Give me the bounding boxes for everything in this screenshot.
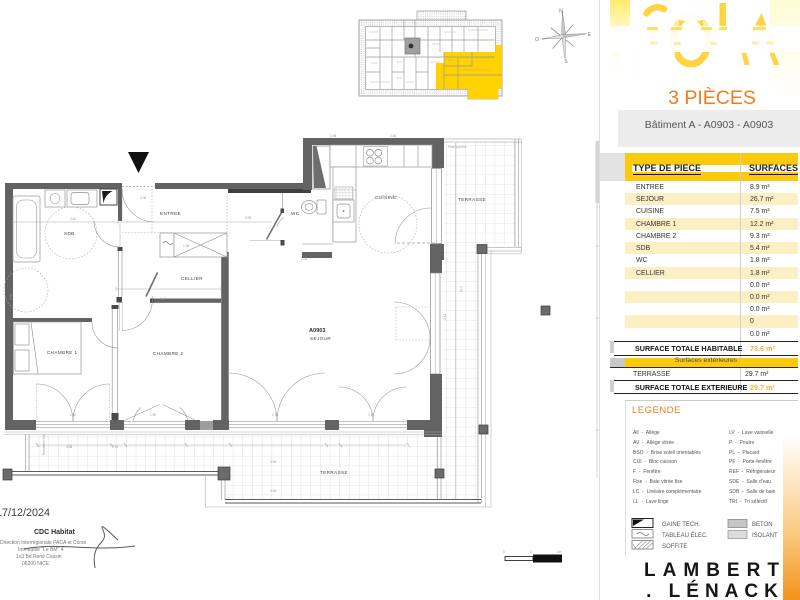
- svg-text:S: S: [564, 59, 568, 65]
- svg-text:Retombée 43a: Retombée 43a: [42, 434, 46, 455]
- svg-text:TERRASSE: TERRASSE: [320, 470, 348, 475]
- svg-text:2.80: 2.80: [70, 413, 76, 417]
- svg-text:CELLIER: CELLIER: [181, 276, 203, 281]
- svg-text:SEJOUR: SEJOUR: [310, 336, 331, 341]
- svg-text:2.61: 2.61: [443, 314, 447, 320]
- svg-text:2.96: 2.96: [272, 413, 278, 417]
- svg-text:0: 0: [503, 550, 505, 554]
- svg-text:CDC Habitat: CDC Habitat: [34, 529, 76, 536]
- svg-text:SOFFITE: SOFFITE: [662, 544, 687, 550]
- svg-text:WC: WC: [291, 211, 300, 216]
- svg-text:1.38: 1.38: [183, 244, 189, 248]
- svg-text:3.30: 3.30: [9, 294, 13, 300]
- svg-text:SDB: SDB: [64, 231, 75, 236]
- svg-text:1: 1: [530, 550, 532, 554]
- svg-text:06200 NICE: 06200 NICE: [22, 561, 50, 567]
- svg-text:3.99: 3.99: [245, 216, 251, 220]
- svg-text:Immeuble "Le BM" 4: Immeuble "Le BM" 4: [18, 547, 64, 553]
- svg-text:A0903: A0903: [309, 328, 325, 334]
- svg-text:2.82: 2.82: [70, 217, 76, 221]
- svg-text:1x3 Bd René Cassin: 1x3 Bd René Cassin: [16, 554, 62, 560]
- svg-text:TABLEAU ÉLEC.: TABLEAU ÉLEC.: [662, 532, 708, 539]
- svg-text:2m: 2m: [557, 550, 562, 554]
- svg-text:O: O: [535, 37, 539, 43]
- svg-text:1.98: 1.98: [330, 134, 336, 138]
- svg-text:E: E: [588, 32, 592, 38]
- svg-text:2.08: 2.08: [140, 196, 146, 200]
- svg-text:Direction Interrégionale PACA: Direction Interrégionale PACA et Corse: [0, 540, 87, 546]
- svg-text:ENTREE: ENTREE: [160, 211, 181, 216]
- svg-text:TERRASSE: TERRASSE: [458, 197, 486, 202]
- svg-text:4.56: 4.56: [270, 460, 276, 464]
- svg-text:CUISINE: CUISINE: [375, 195, 396, 200]
- svg-text:CHAMBRE 2: CHAMBRE 2: [153, 351, 183, 356]
- svg-text:4.56: 4.56: [270, 489, 276, 493]
- svg-text:ISOLANT: ISOLANT: [752, 533, 778, 539]
- svg-text:CHAMBRE 1: CHAMBRE 1: [47, 350, 77, 355]
- svg-text:1.90: 1.90: [150, 413, 156, 417]
- svg-text:BETON: BETON: [752, 522, 773, 528]
- svg-text:2.55: 2.55: [390, 134, 396, 138]
- svg-text:1.08: 1.08: [301, 257, 307, 261]
- svg-text:17/12/2024: 17/12/2024: [0, 507, 50, 519]
- svg-text:1.40: 1.40: [160, 297, 166, 301]
- svg-text:4.38: 4.38: [66, 445, 72, 449]
- svg-text:1.50: 1.50: [459, 286, 463, 292]
- svg-text:2.10: 2.10: [368, 413, 374, 417]
- svg-text:N: N: [559, 9, 563, 15]
- svg-text:GAINE TECH.: GAINE TECH.: [662, 522, 701, 528]
- svg-text:1.91: 1.91: [112, 445, 118, 449]
- svg-text:Pare vue fixe: Pare vue fixe: [448, 145, 467, 149]
